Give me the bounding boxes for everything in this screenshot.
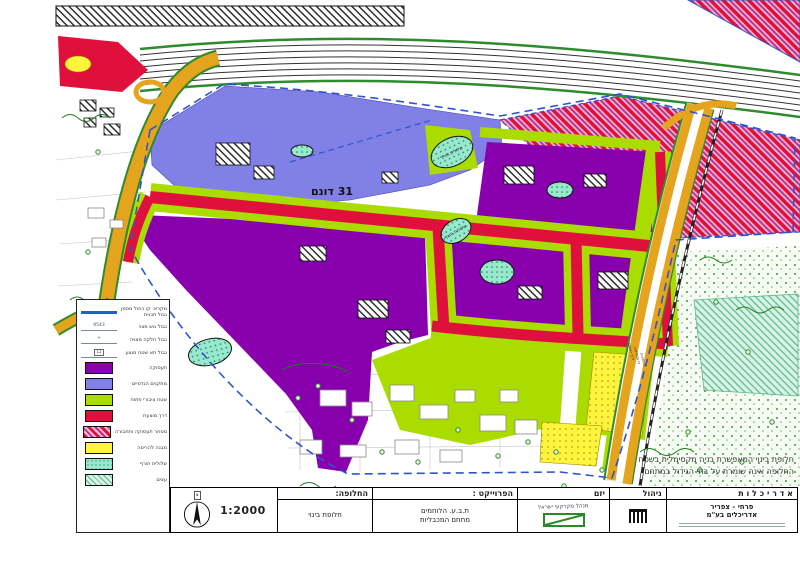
management-header: ניהול [610,488,666,500]
area-size-label: 31 דונם [311,185,353,198]
legend-item-proposed-road: דרך מוצעת [79,408,167,424]
legend-item-plan-boundary: מקרא: קו כחול מסמן גבול תכנית [79,303,167,321]
management-logo-icon [629,509,647,523]
legend-item-winter-pond: שלולית חורף [79,456,167,472]
chartreuse-swatch [85,394,113,406]
title-block: א ד ר י כ ל ו ת פרחי - צפריר אדריכלים בע… [170,487,798,533]
project-name-line2: מתחם המכבליות [420,516,470,525]
legend-item-trees: עצים [79,472,167,488]
project-header: הפרוייקט : [373,488,517,500]
developer-header: יזם [518,488,609,500]
firm-contact-lines [667,520,797,530]
north-letter: צ [194,491,201,500]
developer-cell: יזם מנהל מקרקעי ישראל [517,488,609,532]
purple-swatch [85,362,113,374]
red-hatch-swatch [83,426,111,438]
yellow-swatch [85,442,113,454]
alternative-header: החלופה: [278,488,372,500]
project-name-line1: ת.ב.ע. הלוחמים [421,507,469,516]
architecture-column: א ד ר י כ ל ו ת פרחי - צפריר אדריכלים בע… [666,488,797,532]
cell-line-marker: 11 [79,349,119,358]
firm-name-line2: אדריכלים בע"מ [707,511,758,520]
yellow-zone-topleft [65,56,91,72]
north-arrow: צ [182,491,212,529]
teal-dots-swatch [85,458,113,470]
plan-sheet: 31 דונם שלולית חורף שלולית חורף דרך ראשי… [0,0,800,566]
red-swatch [85,410,113,422]
compass-icon [182,500,212,529]
legend-item-demolition: מבנה להריסה [79,440,167,456]
blue-line-marker [79,311,119,314]
block-line-marker: 9543 [79,324,119,331]
alternative-cell: החלופה: חלופת בינוי [277,488,372,532]
alternative-value: חלופת בינוי [308,511,342,520]
top-hatched-strip [56,6,404,26]
note-line-2: החלופה אינה שומרת על בתי הגידול במתחם [514,466,794,478]
map-scale: 1:2000 [220,504,266,517]
scale-north-cell: צ 1:2000 [171,488,277,532]
legend-item-open-space: שטח ציבורי פתוח [79,392,167,408]
legend-item-employment: תעסוקה [79,360,167,376]
legend-box: מקרא: קו כחול מסמן גבול תכנית גבול גוש מ… [76,299,170,533]
periwinkle-swatch [85,378,113,390]
legend-label: מקרא: קו כחול מסמן גבול תכנית [121,306,167,319]
legend-item-commerce-transport: מסחר תעסוקה ותחבורה [79,424,167,440]
project-cell: הפרוייקט : ת.ב.ע. הלוחמים מתחם המכבליות [372,488,517,532]
legend-item-parcel-boundary: גבול חלקה מצויה + [79,334,167,347]
management-column: ניהול [610,488,666,532]
legend-item-engineering: מתקנים הנדסיים [79,376,167,392]
alternative-note: חלופת בינוי המאפשרת בניה מקסימלית בשטח ה… [514,454,794,477]
note-line-1: חלופת בינוי המאפשרת בניה מקסימלית בשטח [514,454,794,466]
legend-item-cell-boundary: גבול תא שטח מוצע 11 [79,347,167,360]
architecture-management-cell: א ד ר י כ ל ו ת פרחי - צפריר אדריכלים בע… [609,488,797,532]
mint-hatch-swatch [85,474,113,486]
architecture-header: א ד ר י כ ל ו ת [667,488,797,500]
developer-logo-icon [541,512,587,528]
legend-item-block-boundary: גבול גוש מצוי 9543 [79,321,167,334]
firm-name-line1: פרחי - צפריר [710,503,753,512]
parcel-line-marker: + [79,337,119,344]
